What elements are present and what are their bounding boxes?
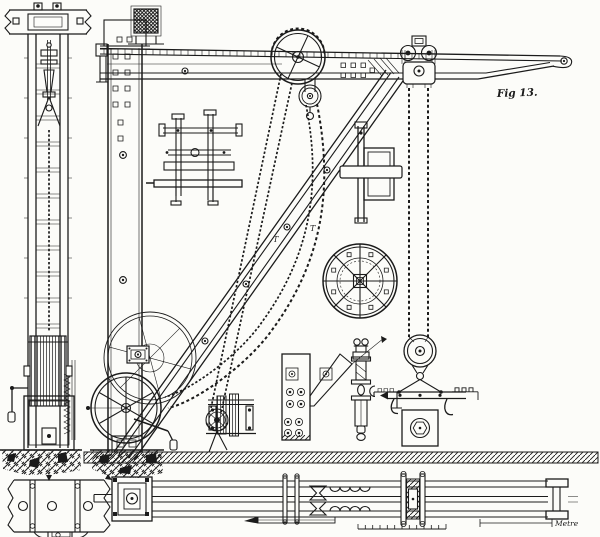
crane-engraving-svg: Metre Fig 13. T T [0, 0, 600, 537]
drive-gearbox [127, 346, 149, 363]
guide-pulley [299, 79, 321, 120]
foundation-left-column [0, 449, 82, 475]
jib-end-ibeam-section [546, 479, 578, 519]
hoist-chains [409, 88, 428, 342]
chain-trolley [401, 36, 437, 88]
jib-plan-rails [152, 481, 548, 517]
trolley-plan [401, 471, 425, 526]
foundation-mast [90, 450, 164, 478]
turnbuckle-detail [352, 339, 376, 441]
right-hook [445, 399, 453, 415]
front-handwheel [86, 373, 161, 443]
rail-scallops-top [330, 487, 370, 492]
pulley-block [404, 335, 436, 380]
wall-bracket-detail [340, 122, 402, 223]
drive-chain [211, 74, 292, 413]
pinion-detail [206, 394, 256, 436]
callout-t-right: T [310, 224, 316, 233]
left-column-elevation [5, 3, 91, 450]
jib-gusset-plate [341, 58, 399, 78]
scale-label: Metre [554, 519, 579, 528]
rail-scallops-bottom [330, 507, 370, 512]
jib-left-end [96, 44, 108, 82]
mast-base-wheels [86, 312, 196, 450]
scale-bar: Metre [358, 519, 579, 529]
rear-drum-wheel [104, 312, 196, 404]
callout-t-left: T [273, 235, 279, 244]
figure-number-label: Fig 13. [496, 87, 538, 100]
column-crank-handle [8, 386, 28, 422]
patent-engraving-crane-figure: Metre Fig 13. T T [0, 0, 600, 537]
nut-plate-detail [402, 410, 438, 446]
column-spindle-mechanism [38, 40, 60, 126]
mast-housing-plan [94, 477, 152, 521]
winch-frame-detail [146, 110, 242, 205]
rivets [284, 388, 304, 436]
mast-rivet-squares [113, 54, 130, 141]
jib-plan-view [94, 469, 578, 527]
gear-wheel-detail [323, 244, 397, 318]
jib-beam [96, 44, 572, 82]
